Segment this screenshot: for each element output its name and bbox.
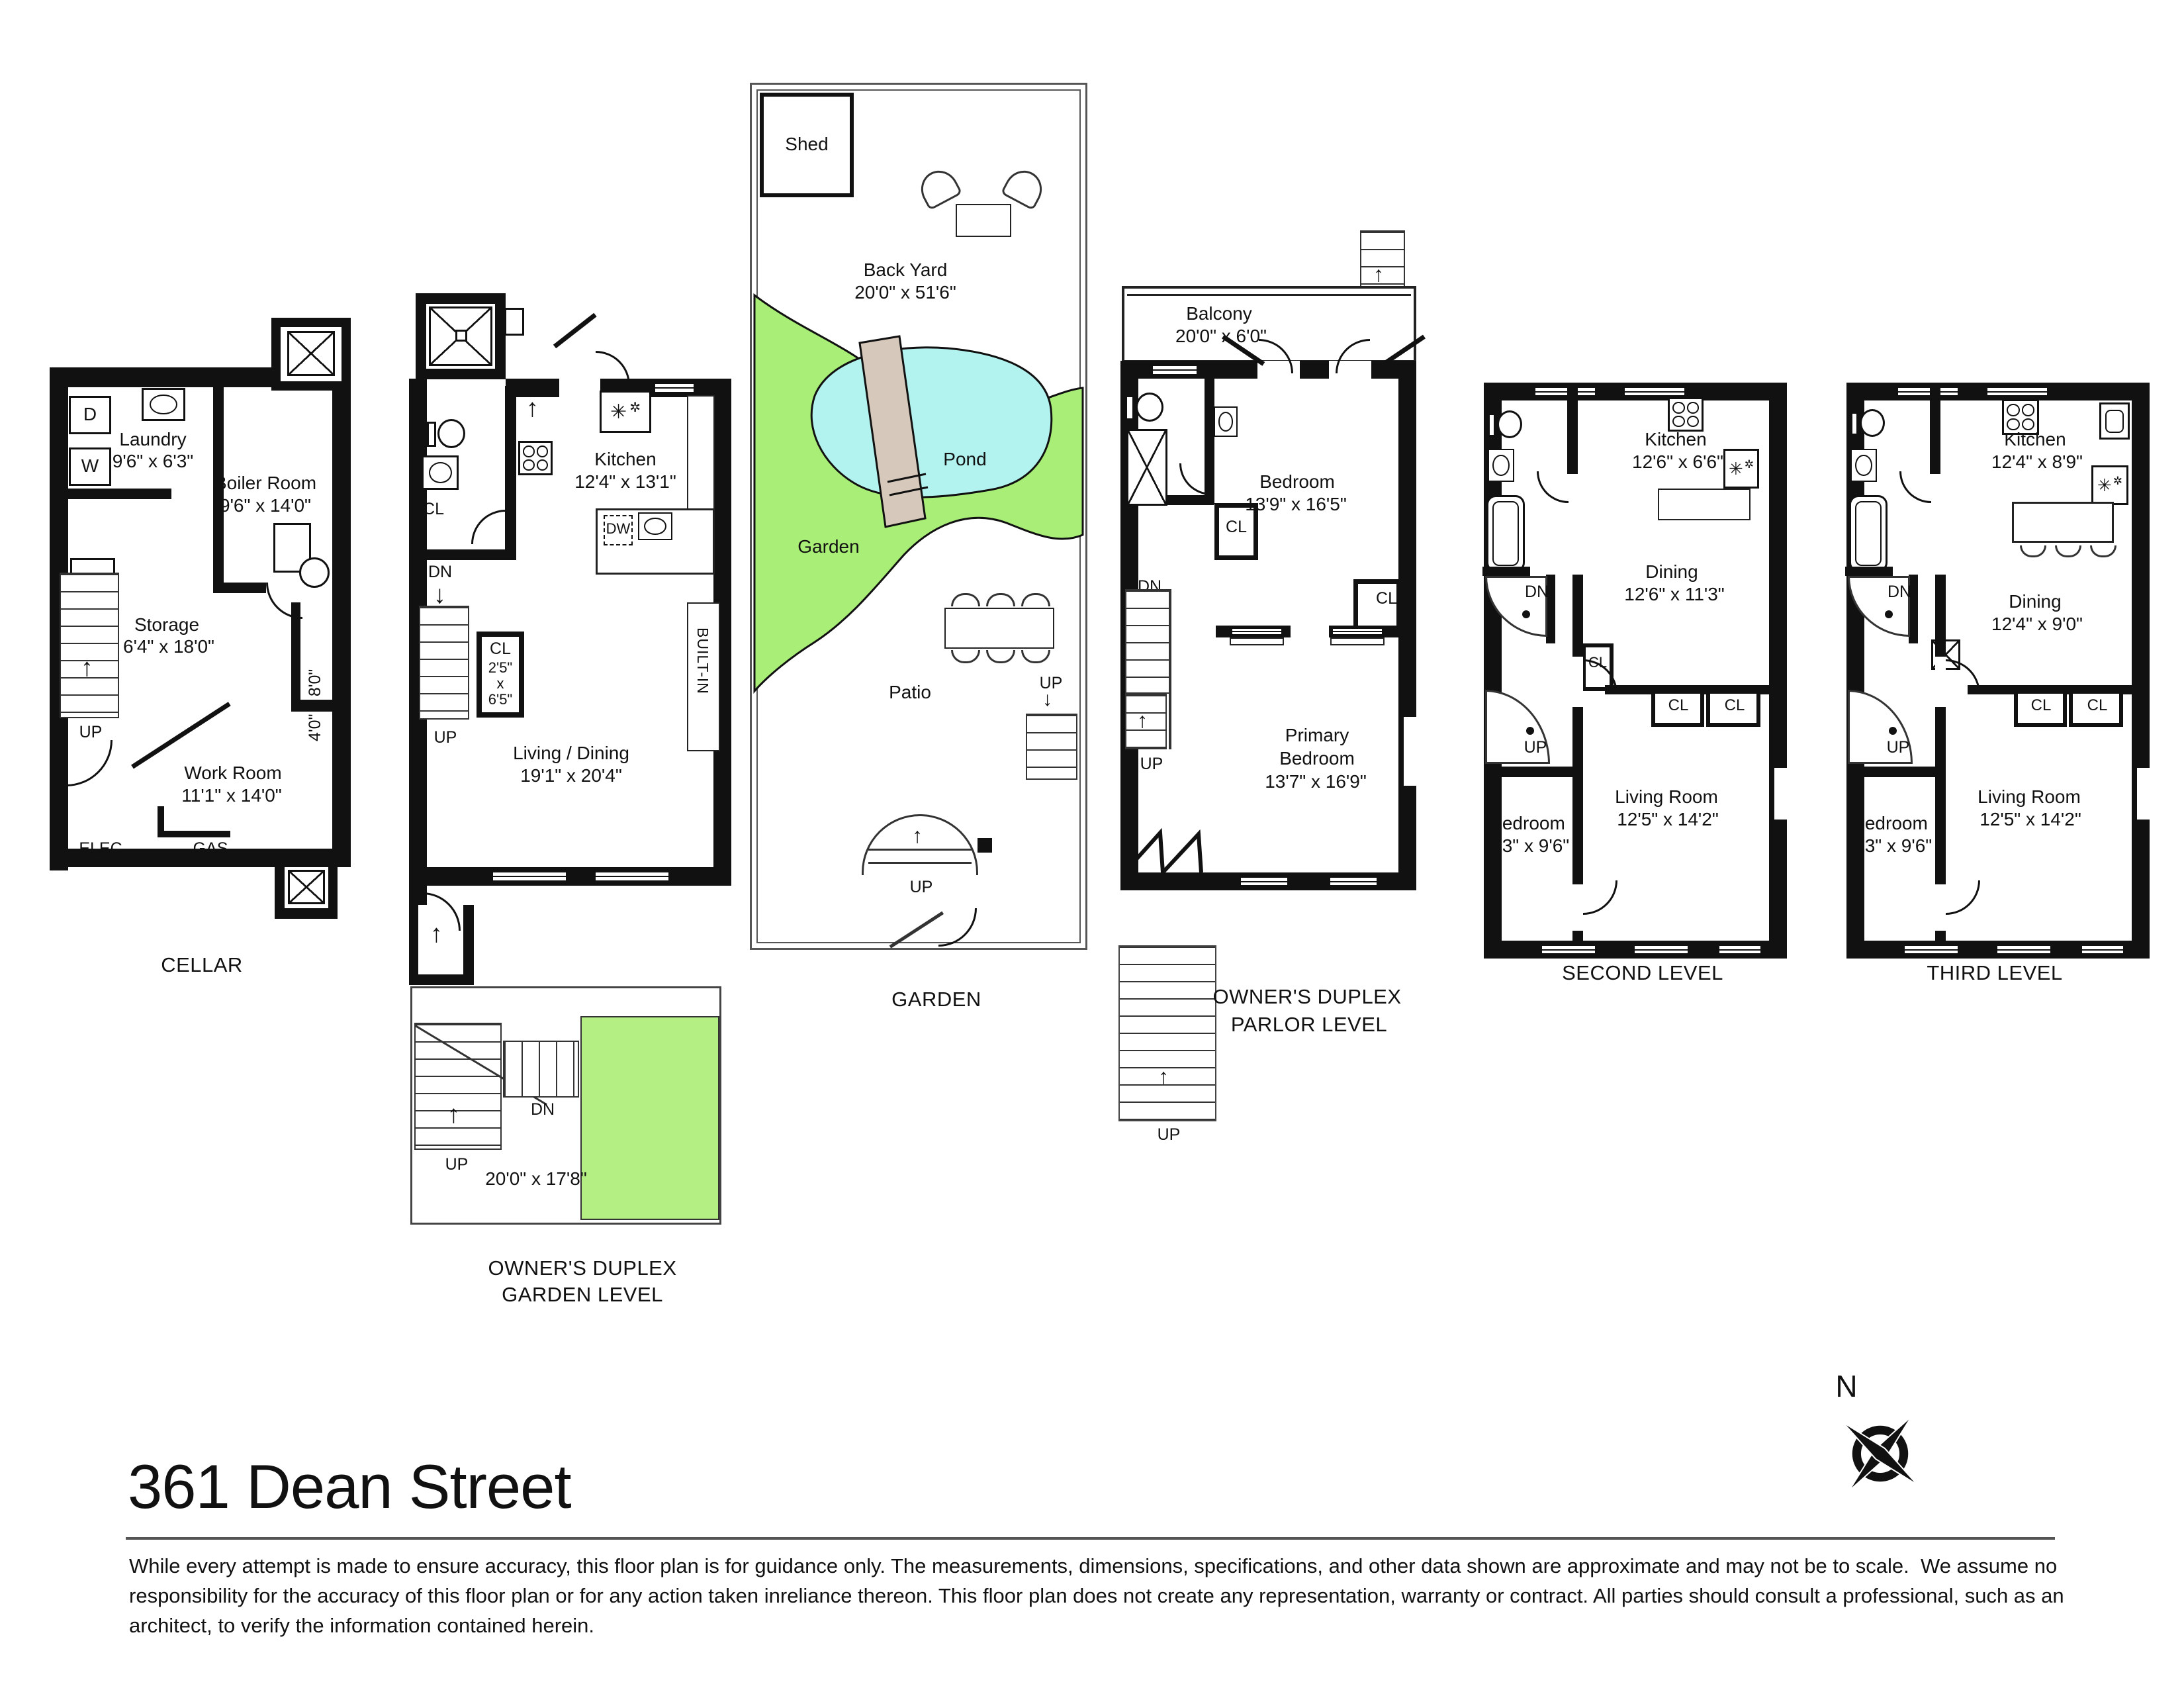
- closet-dims: 6'5": [488, 691, 512, 708]
- snowflake-icon: ✲: [1745, 458, 1754, 471]
- window: [1719, 945, 1760, 955]
- stool: [2090, 545, 2116, 557]
- wall: [409, 867, 731, 886]
- disclaimer-line: While every attempt is made to ensure ac…: [129, 1554, 2057, 1578]
- wall: [59, 489, 171, 499]
- parlor-title1: OWNER'S DUPLEX: [1212, 985, 1401, 1009]
- arrow-up-icon: ↑: [430, 921, 443, 947]
- arrow-up-icon: ↑: [912, 825, 923, 846]
- lawn: [580, 1016, 719, 1220]
- stool: [2020, 545, 2046, 557]
- refrigerator: ✳ ✲: [600, 391, 651, 433]
- counter: [1658, 489, 1751, 520]
- stove-burner: [2022, 404, 2035, 416]
- gas-label: GAS: [193, 839, 228, 859]
- laundry-dims: 9'6" x 6'3": [113, 451, 193, 472]
- skylight-shaft: [288, 870, 325, 904]
- page-title: 361 Dean Street: [128, 1451, 571, 1523]
- bath-sink: [422, 455, 459, 490]
- bathtub: [1849, 495, 1888, 572]
- wall: [2132, 383, 2150, 959]
- second-title: SECOND LEVEL: [1562, 961, 1723, 985]
- door-arc: [1179, 463, 1211, 495]
- stoop-up-label: UP: [910, 878, 933, 897]
- structure: [1526, 727, 1534, 735]
- structure: [644, 518, 666, 536]
- window: [1997, 945, 2050, 955]
- patio-label: Patio: [889, 682, 931, 703]
- bedroom-dims: 6'3" x 9'6": [1488, 835, 1569, 857]
- wall: [418, 549, 516, 560]
- pond: [811, 348, 1052, 497]
- structure: [1935, 657, 1946, 707]
- compass-rose-icon: [1837, 1410, 1924, 1497]
- wall: [158, 831, 230, 837]
- bedroom-dims: 13'9" x 16'5": [1245, 494, 1347, 515]
- backyard-label: Back Yard: [864, 259, 948, 281]
- arrow-down-icon: ↓: [1042, 690, 1052, 710]
- elevator-shaft: [287, 331, 335, 376]
- snowflake-icon: ✳: [2097, 475, 2112, 496]
- dishwasher: [2099, 402, 2130, 440]
- door-arc: [1946, 880, 1980, 915]
- door-arc: [471, 510, 506, 544]
- stove-burner: [1672, 402, 1685, 414]
- window: [1330, 876, 1377, 886]
- closet-label: CL: [1668, 696, 1689, 715]
- structure: [1124, 833, 1201, 872]
- bedroom-dims: 6'3" x 9'6": [1851, 835, 1932, 857]
- dining-dims: 12'4" x 9'0": [1991, 614, 2083, 635]
- wall: [332, 386, 351, 867]
- arrow-up-icon: ↑: [1373, 263, 1384, 285]
- closet-dims: 2'5": [488, 659, 512, 676]
- stove-burner: [1672, 416, 1685, 428]
- structure: [455, 330, 467, 342]
- stove-burner: [523, 459, 535, 471]
- disclaimer-line: architect, to verify the information con…: [129, 1614, 594, 1638]
- garden-stairs: [1026, 714, 1077, 780]
- deck-dn-label: DN: [531, 1100, 555, 1119]
- balcony-dims: 20'0" x 6'0": [1175, 326, 1267, 347]
- wall: [409, 974, 474, 985]
- structure: [131, 702, 231, 769]
- snowflake-icon: ✳: [1729, 459, 1743, 479]
- stairs-up-label: UP: [1887, 738, 1910, 757]
- structure: [1855, 455, 1872, 476]
- storage-label: Storage: [134, 614, 199, 635]
- kitchen-label: Kitchen: [594, 449, 656, 470]
- wall: [50, 367, 275, 387]
- elec-label: ELEC: [79, 839, 122, 859]
- structure: [1855, 501, 1882, 566]
- wall: [1846, 767, 1946, 777]
- closet-label: CL: [1376, 589, 1397, 608]
- kitchen-dims: 12'4" x 8'9": [1991, 451, 2083, 473]
- structure: [1497, 410, 1522, 438]
- arrow-up-icon: ↑: [447, 1102, 460, 1127]
- arrow-up-icon: ↑: [1158, 1066, 1169, 1087]
- structure: [1291, 626, 1329, 637]
- kitchen-island: [2012, 502, 2114, 543]
- kitchen-label: Kitchen: [1645, 429, 1706, 450]
- living-room-label: Living Room: [1978, 786, 2081, 808]
- bath-sink: [1850, 449, 1877, 482]
- closet-label: CL: [490, 639, 511, 659]
- water-heater: [299, 557, 330, 588]
- closet-dims: x: [497, 675, 504, 692]
- built-in-label: BUILT-IN: [694, 628, 711, 694]
- structure: [1572, 657, 1583, 707]
- wall: [1482, 567, 1530, 576]
- structure: [1572, 884, 1583, 931]
- laundry-label: Laundry: [119, 429, 186, 450]
- arrow-up-icon: ↑: [1137, 710, 1148, 731]
- wall: [291, 602, 300, 702]
- dining-label: Dining: [2009, 591, 2061, 612]
- snowflake-icon: ✳: [610, 400, 627, 424]
- washer-label: W: [81, 455, 99, 477]
- wall: [1769, 383, 1787, 959]
- stairs-dn-label: DN: [428, 563, 452, 582]
- structure: [1935, 884, 1946, 931]
- bath-sink: [1488, 449, 1514, 482]
- kitchen-dims: 12'6" x 6'6": [1632, 451, 1723, 473]
- boiler-room-dims: 9'6" x 14'0": [220, 495, 311, 516]
- structure: [1860, 409, 1885, 437]
- work-room-dims: 11'1" x 14'0": [181, 785, 281, 806]
- structure: [437, 419, 465, 448]
- structure: [429, 462, 452, 483]
- door-arc: [1583, 880, 1617, 915]
- third-title: THIRD LEVEL: [1927, 961, 2062, 985]
- work-room-label: Work Room: [184, 763, 281, 784]
- structure: [1230, 637, 1284, 645]
- stairs-up-label: UP: [1140, 755, 1163, 774]
- door-arc: [1899, 471, 1931, 503]
- cellar-stairs: [60, 573, 119, 718]
- wall: [505, 386, 516, 551]
- stairs-up-label: UP: [434, 728, 457, 747]
- closet-label: CL: [1725, 696, 1745, 715]
- toilet: [1850, 412, 1858, 436]
- door-arc: [596, 351, 630, 385]
- structure: [1218, 412, 1233, 431]
- living-dining-label: Living / Dining: [513, 743, 629, 764]
- stoop-up-label: UP: [1158, 1125, 1181, 1145]
- kitchen-sink: [638, 512, 672, 540]
- window: [1898, 387, 1958, 397]
- window: [2082, 945, 2123, 955]
- stairs-up-label: UP: [1524, 738, 1547, 757]
- window: [1153, 365, 1197, 375]
- closet-label: CL: [423, 500, 444, 519]
- shower: [1126, 429, 1167, 506]
- primary-bedroom-label1: Primary: [1285, 725, 1349, 746]
- arrow-up-icon: ↑: [81, 655, 93, 680]
- deck-dims: 20'0" x 17'8": [485, 1168, 587, 1190]
- structure: [2135, 767, 2150, 820]
- window: [1625, 387, 1684, 397]
- garden-level-title1: OWNER'S DUPLEX: [488, 1256, 676, 1280]
- bedroom-label: Bedroom: [1259, 471, 1335, 492]
- wall: [1484, 767, 1583, 777]
- stairs-dn-label: DN: [1888, 583, 1911, 602]
- stool: [2055, 545, 2081, 557]
- window: [1987, 387, 2047, 397]
- backyard-dims: 20'0" x 51'6": [854, 282, 956, 303]
- stove-burner: [537, 445, 549, 457]
- crawl-space-dims: 4'0" x 8'0": [306, 629, 325, 741]
- structure: [2105, 410, 2124, 433]
- structure: [1522, 610, 1530, 618]
- snowflake-icon: ✲: [629, 399, 641, 416]
- structure: [1127, 294, 1411, 296]
- stove-burner: [523, 445, 535, 457]
- stove-burner: [1687, 416, 1700, 428]
- window: [1241, 876, 1287, 886]
- balcony-label: Balcony: [1186, 303, 1252, 324]
- wall: [1769, 751, 1787, 768]
- wall: [2132, 751, 2150, 768]
- front-stoop: [1118, 945, 1216, 1121]
- primary-bedroom-label2: Bedroom: [1279, 748, 1355, 769]
- wall: [158, 806, 164, 833]
- stove: [1668, 397, 1704, 432]
- structure: [868, 849, 972, 851]
- structure: [868, 862, 972, 864]
- door-arc: [1537, 471, 1569, 503]
- toilet: [1488, 413, 1496, 437]
- structure: [150, 395, 177, 415]
- closet-label: CL: [1226, 518, 1247, 537]
- stove-burner: [1687, 402, 1700, 414]
- structure: [1885, 610, 1893, 618]
- wall: [213, 583, 266, 593]
- floor-plan-sheet: D W HVAC ↑ UP Laundry 9'6" x 6'3" Boiler…: [0, 0, 2184, 1688]
- closet-label: CL: [2031, 696, 2052, 715]
- disclaimer-line: responsibility for the accuracy of this …: [129, 1584, 2064, 1608]
- structure: [559, 379, 600, 397]
- chimney-vent: [504, 308, 524, 336]
- garden-area-label: Garden: [797, 536, 859, 557]
- entry-doors: [1123, 812, 1210, 874]
- parlor-stairs-dn: [1125, 589, 1170, 694]
- window: [1535, 387, 1595, 397]
- stove: [518, 441, 553, 475]
- kitchen-dims: 12'4" x 13'1": [574, 471, 676, 492]
- garden-level-stairs: [419, 606, 469, 720]
- structure: [1136, 393, 1163, 422]
- window: [1905, 945, 1958, 955]
- cellar-title: CELLAR: [161, 953, 243, 977]
- toilet: [1125, 395, 1134, 420]
- dining-label: Dining: [1645, 561, 1698, 583]
- deck-up-label: UP: [445, 1155, 469, 1174]
- bath-sink: [1214, 406, 1238, 437]
- living-dining-dims: 19'1" x 20'4": [520, 765, 622, 786]
- boiler-room-label: Boiler Room: [214, 473, 316, 494]
- window: [1542, 945, 1595, 955]
- toilet: [427, 422, 436, 447]
- compass-north-label: N: [1835, 1369, 1857, 1404]
- garden-title: GARDEN: [891, 988, 981, 1011]
- storage-dims: 6'4" x 18'0": [123, 636, 214, 657]
- wall: [1398, 700, 1416, 717]
- bathtub: [1486, 495, 1525, 572]
- divider-line: [126, 1537, 2055, 1540]
- wall: [1930, 383, 1940, 474]
- window: [596, 871, 668, 882]
- stove-burner: [537, 459, 549, 471]
- wall: [463, 905, 474, 985]
- refrigerator: ✳ ✲: [2091, 465, 2128, 505]
- closet-label: CL: [2087, 696, 2108, 715]
- wall: [1398, 786, 1416, 802]
- snowflake-icon: ✲: [2113, 475, 2122, 488]
- structure: [553, 313, 597, 349]
- deck-stairs-up: [414, 1023, 502, 1150]
- pond-label: Pond: [943, 449, 986, 470]
- shed-label: Shed: [785, 134, 828, 155]
- primary-bedroom-dims: 13'7" x 16'9": [1265, 771, 1367, 792]
- door-arc: [66, 740, 113, 786]
- dining-dims: 12'6" x 11'3": [1624, 584, 1724, 605]
- wall: [2132, 820, 2150, 836]
- dryer-label: D: [83, 404, 97, 425]
- refrigerator: ✳ ✲: [1723, 449, 1759, 489]
- wall: [409, 886, 418, 985]
- bedroom-label: Bedroom: [1852, 813, 1928, 834]
- wall: [978, 838, 992, 853]
- dishwasher-label: DW: [606, 520, 631, 537]
- living-room-dims: 12'5" x 14'2": [1979, 809, 2081, 830]
- kitchen-label: Kitchen: [2004, 429, 2066, 450]
- arrow-down-icon: ↓: [433, 583, 446, 608]
- patio-table: [944, 608, 1054, 649]
- structure: [1772, 767, 1787, 820]
- wall: [1167, 495, 1214, 505]
- living-room-label: Living Room: [1615, 786, 1718, 808]
- garden-level-title2: GARDEN LEVEL: [502, 1283, 663, 1307]
- structure: [1837, 1410, 1924, 1497]
- window: [493, 871, 566, 882]
- window: [1635, 945, 1688, 955]
- wall: [1567, 383, 1578, 474]
- arrow-up-icon: ↑: [526, 396, 539, 421]
- window: [1333, 628, 1382, 635]
- laundry-sink: [142, 388, 185, 421]
- living-room-dims: 12'5" x 14'2": [1617, 809, 1719, 830]
- parlor-title2: PARLOR LEVEL: [1231, 1013, 1387, 1037]
- structure: [1169, 589, 1171, 749]
- window: [655, 383, 694, 393]
- wall: [1769, 820, 1787, 836]
- structure: [1492, 501, 1519, 566]
- stairs-up-label: UP: [79, 723, 103, 742]
- window: [1232, 628, 1281, 635]
- structure: [1402, 717, 1416, 786]
- bedroom-label: Bedroom: [1490, 813, 1565, 834]
- structure: [1889, 727, 1897, 735]
- stove-burner: [2007, 404, 2020, 416]
- deck-stairs-dn: [503, 1041, 579, 1098]
- wall: [1845, 567, 1893, 576]
- stairs-dn-label: DN: [1525, 583, 1549, 602]
- structure: [1492, 455, 1509, 476]
- garden-table: [956, 204, 1011, 237]
- structure: [1330, 637, 1385, 645]
